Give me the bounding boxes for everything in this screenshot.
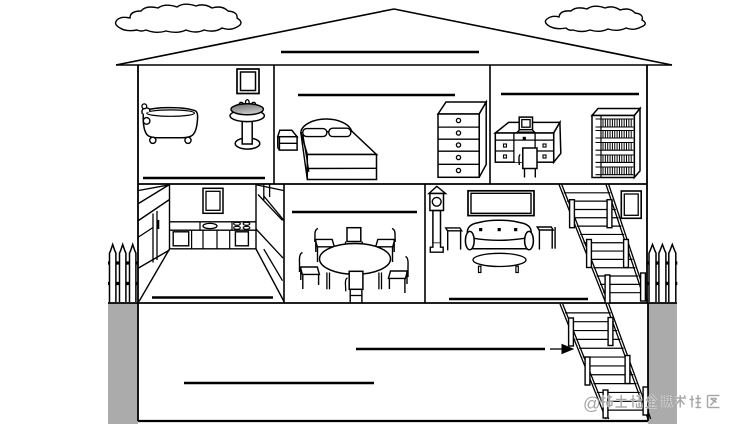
- svg-text:@: @: [583, 394, 601, 414]
